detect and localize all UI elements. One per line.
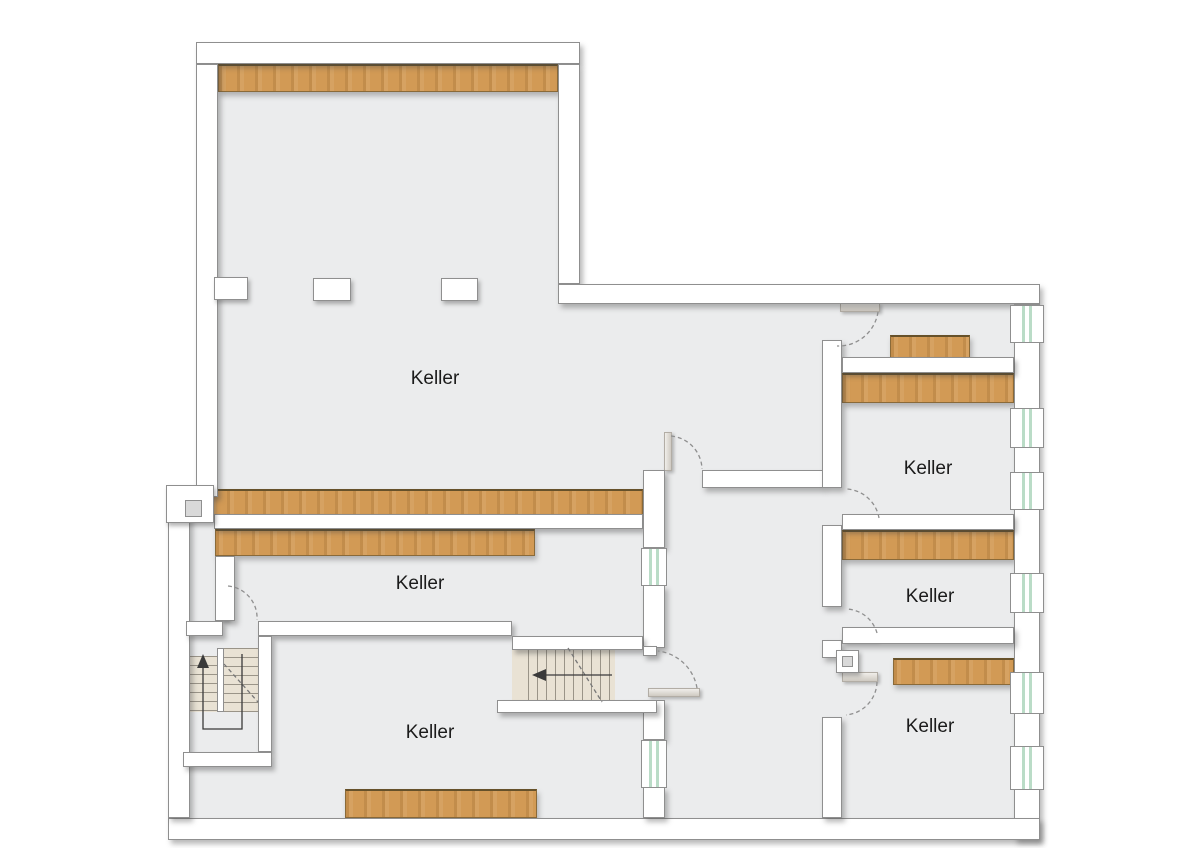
exterior-wall-main-room-right xyxy=(558,64,580,284)
wall-corridor-west-d xyxy=(643,787,665,818)
u-stair-left-flight xyxy=(190,656,217,712)
straight-stair-landing xyxy=(512,650,528,700)
wall-u-stair-divider xyxy=(217,648,224,712)
wall-corridor-east-mid xyxy=(822,525,842,607)
wall-stairwell-north xyxy=(186,621,223,636)
room-label-right-upper: Keller xyxy=(873,458,983,480)
exterior-wall-bottom xyxy=(168,818,1040,840)
window-corridor-1 xyxy=(641,548,667,586)
beam-middle-room-top xyxy=(215,529,535,556)
wall-right-rooms-divider-1 xyxy=(842,357,1014,373)
chimney-left-flue xyxy=(185,500,202,517)
pillar-main-room-1 xyxy=(313,278,351,301)
room-label-middle: Keller xyxy=(365,573,475,595)
window-right-3 xyxy=(1010,472,1044,510)
window-right-1 xyxy=(1010,305,1044,343)
window-corridor-2 xyxy=(641,740,667,788)
wall-straight-stair-south xyxy=(497,700,657,713)
wall-stairwell-south xyxy=(183,752,272,767)
wall-right-rooms-divider-2 xyxy=(842,514,1014,530)
beam-main-room-bottom xyxy=(208,489,643,515)
door-leaf-straight-stair xyxy=(648,688,700,697)
beam-main-room-top xyxy=(218,64,558,92)
wall-main-corridor-divider xyxy=(702,470,823,488)
room-label-bottom-left: Keller xyxy=(375,722,485,744)
floor-plan: Keller Keller Keller Keller Keller Kelle… xyxy=(0,0,1200,848)
wall-straight-stair-north xyxy=(512,636,643,650)
beam-right-middle-room xyxy=(842,530,1014,560)
u-stair-right-flight xyxy=(223,648,258,712)
wall-corridor-west-b xyxy=(643,585,665,648)
wall-right-rooms-divider-3 xyxy=(842,627,1014,644)
wall-main-middle-divider xyxy=(214,514,643,529)
pillar-main-room-2 xyxy=(441,278,478,301)
beam-right-upper-room xyxy=(842,373,1014,403)
room-label-main: Keller xyxy=(380,368,490,390)
door-leaf-main-room xyxy=(664,432,672,471)
beam-right-lower-room xyxy=(893,658,1014,685)
window-right-2 xyxy=(1010,408,1044,448)
wall-middle-bottom-divider xyxy=(258,621,512,636)
wall-straight-stair-jamb xyxy=(643,646,657,656)
door-leaf-right-lower xyxy=(842,672,878,682)
beam-bottom-room xyxy=(345,789,537,818)
exterior-wall-top xyxy=(196,42,580,64)
exterior-wall-left-lower xyxy=(168,497,190,818)
window-right-5 xyxy=(1010,672,1044,714)
exterior-wall-right-section-top xyxy=(558,284,1040,304)
floor-main-room xyxy=(218,64,558,514)
wall-corridor-west-a xyxy=(643,470,665,548)
wall-stairwell-east xyxy=(258,636,272,752)
door-leaf-small-room xyxy=(840,303,880,312)
straight-stair-treads xyxy=(528,650,615,700)
window-right-6 xyxy=(1010,746,1044,790)
pilaster-main-room xyxy=(214,277,248,300)
wall-corridor-east-lower xyxy=(822,717,842,818)
wall-landing xyxy=(215,556,235,621)
room-label-right-middle: Keller xyxy=(875,586,985,608)
workbench-small-room xyxy=(890,335,970,358)
room-label-right-lower: Keller xyxy=(875,716,985,738)
chimney-corridor-flue xyxy=(842,656,853,667)
window-right-4 xyxy=(1010,573,1044,613)
wall-corridor-east-upper xyxy=(822,340,842,488)
